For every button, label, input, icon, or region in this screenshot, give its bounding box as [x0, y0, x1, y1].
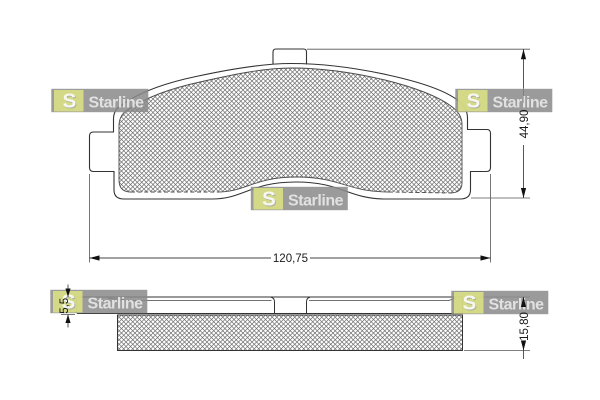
svg-text:44,90: 44,90	[519, 110, 531, 139]
svg-text:120,75: 120,75	[273, 253, 308, 265]
svg-text:15,80: 15,80	[519, 312, 531, 341]
svg-text:5,5: 5,5	[59, 298, 71, 314]
